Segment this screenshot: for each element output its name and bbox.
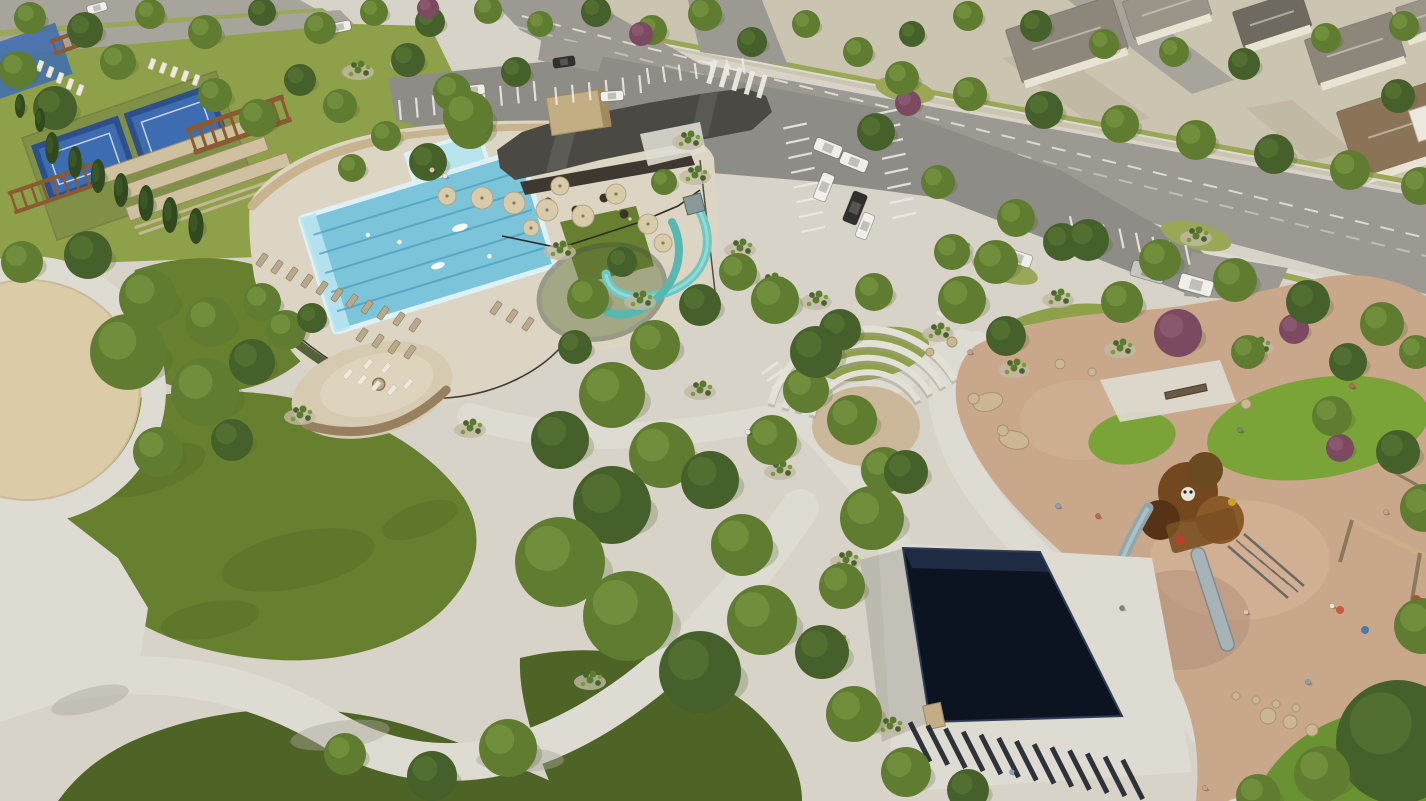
spring-toy xyxy=(1336,606,1344,614)
boulder xyxy=(1306,724,1318,736)
stripe xyxy=(572,85,574,103)
spring-toy xyxy=(1361,626,1369,634)
boulder xyxy=(1232,692,1240,700)
boulder xyxy=(1283,715,1297,729)
umbrella xyxy=(536,199,558,221)
boulder xyxy=(926,348,934,356)
boulder xyxy=(1272,700,1280,708)
stripe xyxy=(589,82,591,100)
stripe xyxy=(639,75,641,93)
stripe xyxy=(555,87,557,105)
umbrella xyxy=(638,214,658,234)
boulder xyxy=(1260,708,1276,724)
boulder xyxy=(1055,359,1065,369)
park-scene: Aerial rendering of a community park ame… xyxy=(0,0,1426,801)
umbrella xyxy=(551,177,569,195)
boulder xyxy=(1088,368,1096,376)
umbrella xyxy=(523,220,539,236)
umbrella xyxy=(471,187,493,209)
umbrella xyxy=(606,184,626,204)
umbrella xyxy=(654,234,672,252)
umbrella xyxy=(503,192,525,214)
aerial-rendering: Aerial rendering of a community park ame… xyxy=(0,0,1426,801)
car xyxy=(600,90,624,102)
umbrella xyxy=(572,205,594,227)
boulder xyxy=(947,337,957,347)
slide-tower xyxy=(683,193,705,215)
boulder xyxy=(1252,696,1260,704)
umbrella xyxy=(438,187,456,205)
boulder xyxy=(1241,399,1251,409)
boulder xyxy=(1292,704,1300,712)
